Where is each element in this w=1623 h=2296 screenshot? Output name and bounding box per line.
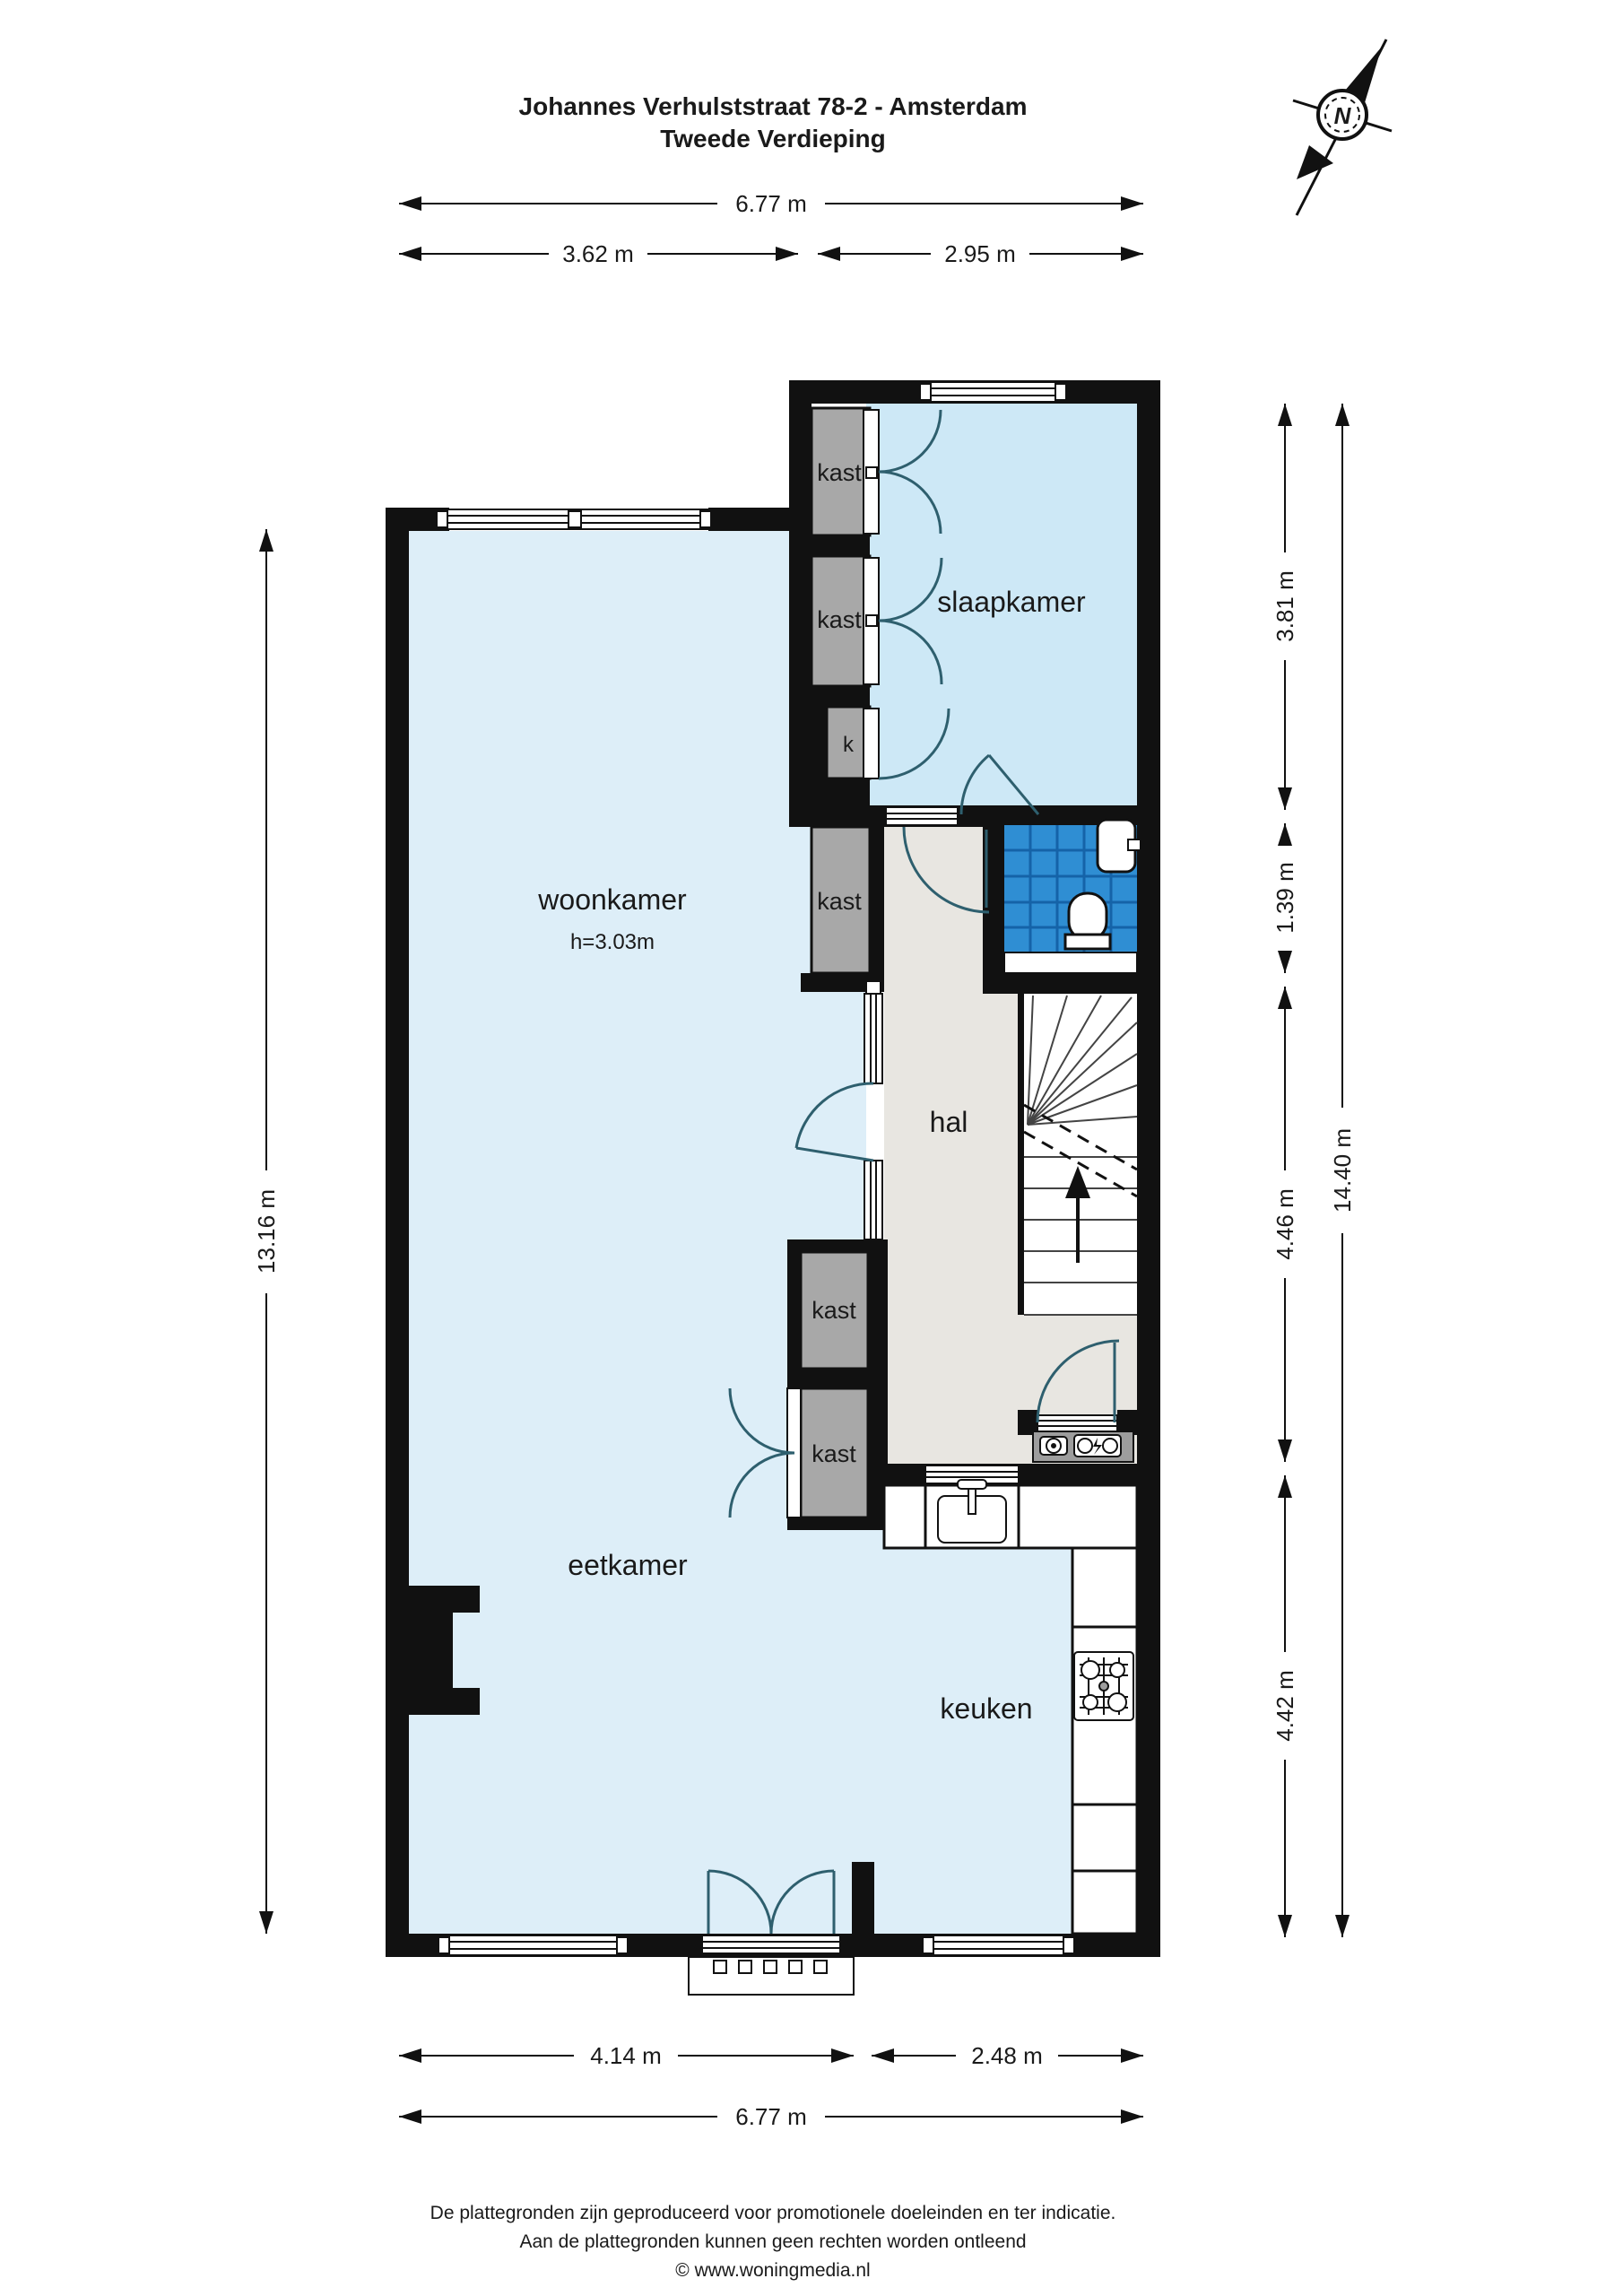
svg-text:4.42 m: 4.42 m <box>1271 1670 1298 1742</box>
kast-label-5: kast <box>811 1440 856 1467</box>
toilet-icon <box>1065 893 1110 949</box>
footer-line-3: © www.woningmedia.nl <box>675 2260 870 2281</box>
closets <box>801 408 870 1518</box>
kast-label-1: kast <box>817 459 862 486</box>
page-title: Johannes Verhulststraat 78-2 - Amsterdam… <box>519 92 1028 152</box>
window-hal-slaapkamer <box>886 807 958 825</box>
kast-label-2: kast <box>817 606 862 633</box>
svg-text:14.40 m: 14.40 m <box>1329 1128 1356 1213</box>
kast-label-3: kast <box>817 888 862 915</box>
dimension-left-total: 13.16 m <box>253 529 280 1934</box>
compass-label: N <box>1334 102 1352 129</box>
stairwell <box>1024 994 1137 1315</box>
stove-icon <box>1074 1652 1133 1720</box>
window-woonkamer-top <box>437 509 711 529</box>
room-label-hal: hal <box>930 1106 968 1138</box>
french-door-threshold <box>702 1935 840 1953</box>
dimension-top-total: 6.77 m <box>399 190 1143 217</box>
window-keuken-bottom <box>923 1935 1074 1955</box>
footer-line-2: Aan de plattegronden kunnen geen rechten… <box>519 2231 1026 2252</box>
room-note-height: h=3.03m <box>570 930 655 954</box>
floor-plan-canvas: Johannes Verhulststraat 78-2 - Amsterdam… <box>0 0 1623 2296</box>
window-eetkamer-bottom <box>438 1935 628 1955</box>
meter-icons <box>1040 1435 1121 1457</box>
kitchen-counter-right <box>1072 1548 1137 1934</box>
svg-text:2.95 m: 2.95 m <box>944 240 1016 267</box>
dimension-right-keuken: 4.42 m <box>1271 1475 1298 1937</box>
svg-text:4.46 m: 4.46 m <box>1271 1188 1298 1260</box>
kast-label-k: k <box>843 733 855 757</box>
svg-text:6.77 m: 6.77 m <box>735 190 807 217</box>
meter-cupboard <box>1033 1431 1133 1462</box>
entrance-door-band <box>1037 1415 1117 1431</box>
dimension-top-right: 2.95 m <box>818 240 1143 267</box>
svg-text:2.48 m: 2.48 m <box>971 2042 1043 2069</box>
room-label-eetkamer: eetkamer <box>568 1549 688 1581</box>
svg-text:6.77 m: 6.77 m <box>735 2103 807 2130</box>
footer-line-1: De plattegronden zijn geproduceerd voor … <box>430 2203 1116 2223</box>
balcony <box>689 1957 854 1995</box>
room-label-woonkamer: woonkamer <box>537 883 687 916</box>
dimension-right-slaapkamer: 3.81 m <box>1271 404 1298 810</box>
floor-plan-page: Johannes Verhulststraat 78-2 - Amsterdam… <box>0 0 1623 2296</box>
dimension-bottom-left: 4.14 m <box>399 2042 854 2069</box>
kitchen-counter-top <box>884 1485 1137 1548</box>
svg-text:13.16 m: 13.16 m <box>253 1189 280 1274</box>
kast-label-4: kast <box>811 1297 856 1324</box>
svg-text:3.81 m: 3.81 m <box>1271 570 1298 642</box>
washbasin-icon <box>1098 820 1141 872</box>
staircase <box>1024 994 1137 1315</box>
dimension-bottom-right: 2.48 m <box>872 2042 1143 2069</box>
dimension-bottom-total: 6.77 m <box>399 2103 1143 2130</box>
window-slaapkamer-top <box>920 382 1066 402</box>
dimension-right-total: 14.40 m <box>1329 404 1356 1937</box>
room-label-slaapkamer: slaapkamer <box>937 586 1086 618</box>
dimension-right-hal: 4.46 m <box>1271 987 1298 1462</box>
bathroom <box>1004 820 1141 973</box>
glazed-partition-woonkamer-hal <box>864 981 882 1239</box>
svg-text:4.14 m: 4.14 m <box>590 2042 662 2069</box>
bathroom-ledge <box>1004 952 1137 973</box>
dimension-right-badkamer: 1.39 m <box>1271 823 1298 973</box>
title-line-2: Tweede Verdieping <box>660 125 886 152</box>
svg-text:3.62 m: 3.62 m <box>562 240 634 267</box>
dimension-top-left: 3.62 m <box>399 240 798 267</box>
svg-text:1.39 m: 1.39 m <box>1271 862 1298 934</box>
north-arrow-icon: N <box>1293 39 1392 215</box>
room-label-keuken: keuken <box>940 1692 1032 1725</box>
title-line-1: Johannes Verhulststraat 78-2 - Amsterdam <box>519 92 1028 120</box>
footer-disclaimer: De plattegronden zijn geproduceerd voor … <box>430 2203 1116 2281</box>
